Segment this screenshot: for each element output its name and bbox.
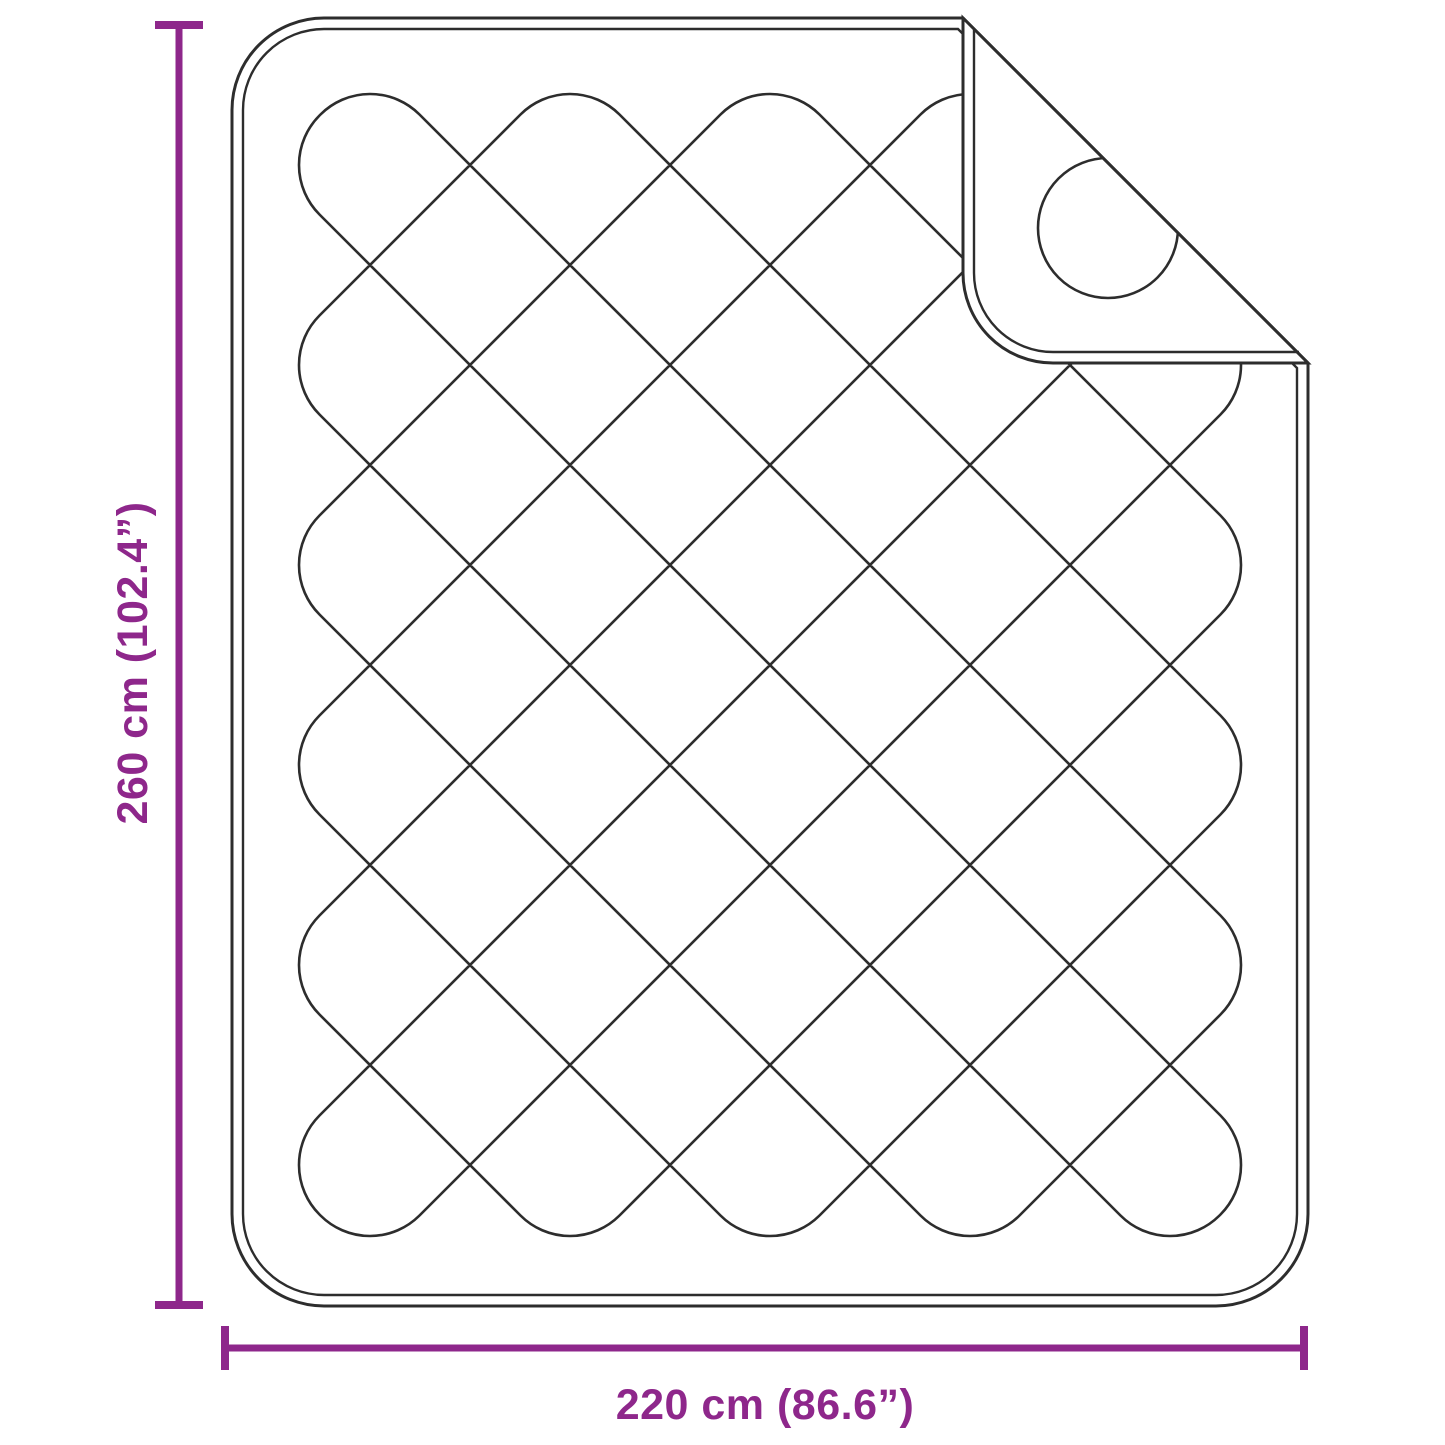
diagram-canvas: 260 cm (102.4”) 220 cm (86.6”) xyxy=(0,0,1445,1445)
product-dimension-diagram: 260 cm (102.4”) 220 cm (86.6”) xyxy=(0,0,1445,1445)
height-dimension-label: 260 cm (102.4”) xyxy=(109,501,157,824)
folded-corner xyxy=(963,18,1308,363)
width-dimension-line xyxy=(225,1326,1304,1370)
height-dimension-line xyxy=(155,25,203,1305)
width-dimension-label: 220 cm (86.6”) xyxy=(616,1381,915,1429)
